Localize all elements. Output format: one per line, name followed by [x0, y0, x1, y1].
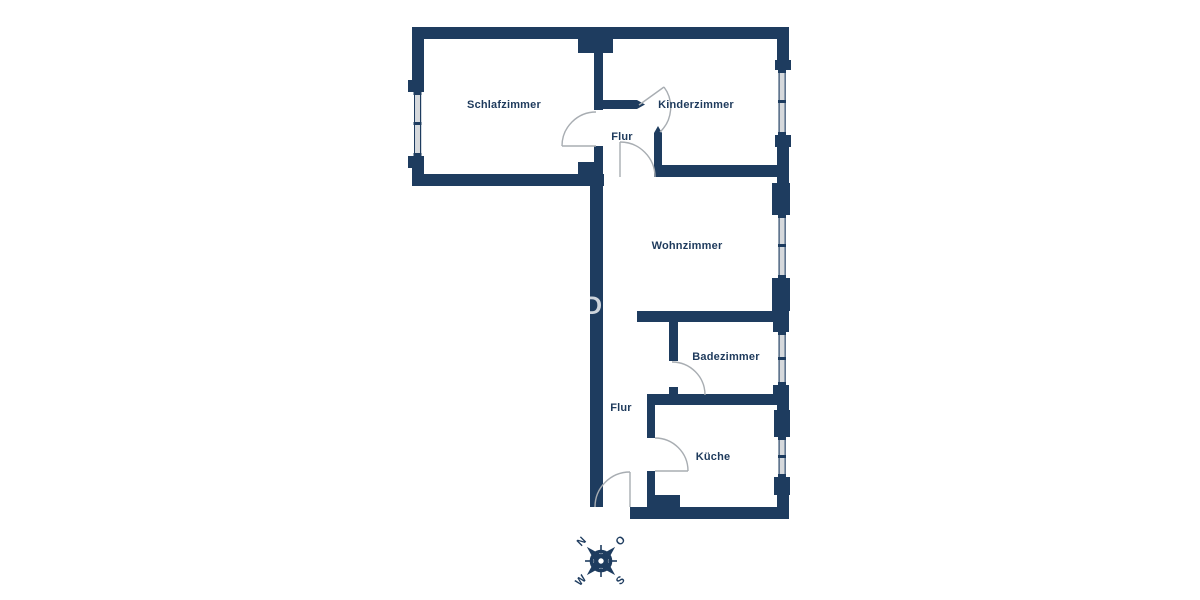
wall-window-reveal	[775, 135, 791, 147]
wall	[412, 27, 789, 39]
window-kueche	[777, 437, 789, 477]
window-schlafzimmer	[412, 92, 424, 156]
wall-pillar	[772, 183, 790, 215]
doors-group	[562, 87, 705, 507]
room-label-flur-lower: Flur	[610, 402, 632, 414]
wall-chimney	[578, 39, 613, 53]
window-kinderzimmer	[777, 70, 789, 135]
room-label-flur-upper: Flur	[611, 131, 633, 143]
wall	[647, 405, 655, 438]
room-label-kinderzimmer: Kinderzimmer	[658, 99, 734, 111]
window-badezimmer	[777, 332, 789, 385]
wall	[647, 394, 777, 405]
wall-duct-block	[647, 495, 680, 519]
door-schlafzimmer	[562, 112, 596, 146]
wall	[412, 174, 604, 186]
wall-window-reveal	[775, 60, 791, 70]
window-wohnzimmer	[777, 215, 789, 278]
wall	[654, 165, 789, 177]
room-label-badezimmer: Badezimmer	[692, 351, 759, 363]
wall	[669, 322, 678, 361]
wall-window-reveal	[773, 312, 788, 332]
wall	[654, 133, 662, 177]
compass-rose: N O S W	[554, 514, 648, 600]
compass-label-east: O	[613, 534, 628, 549]
door-flur-wohnzimmer	[620, 142, 655, 177]
compass-label-north: N	[575, 535, 589, 549]
wall	[594, 100, 637, 109]
compass-label-south: S	[614, 574, 628, 588]
door-kueche	[655, 438, 688, 471]
wall	[590, 184, 603, 507]
wall	[637, 311, 777, 322]
floor-plan-drawing: N O S W	[0, 0, 1200, 600]
wall-window-reveal	[773, 385, 788, 398]
wall-pillar	[772, 278, 790, 311]
room-label-wohnzimmer: Wohnzimmer	[652, 240, 723, 252]
wall-window-reveal	[774, 410, 790, 437]
wall-window-reveal	[408, 156, 424, 168]
wall-window-reveal	[774, 477, 790, 495]
floor-plan-page: N O S W Schlafzimmer Kinderzimmer Flur W…	[0, 0, 1200, 600]
wall	[594, 146, 603, 174]
room-label-kueche: Küche	[696, 451, 731, 463]
room-label-schlafzimmer: Schlafzimmer	[467, 99, 541, 111]
wall-window-reveal	[408, 80, 424, 92]
